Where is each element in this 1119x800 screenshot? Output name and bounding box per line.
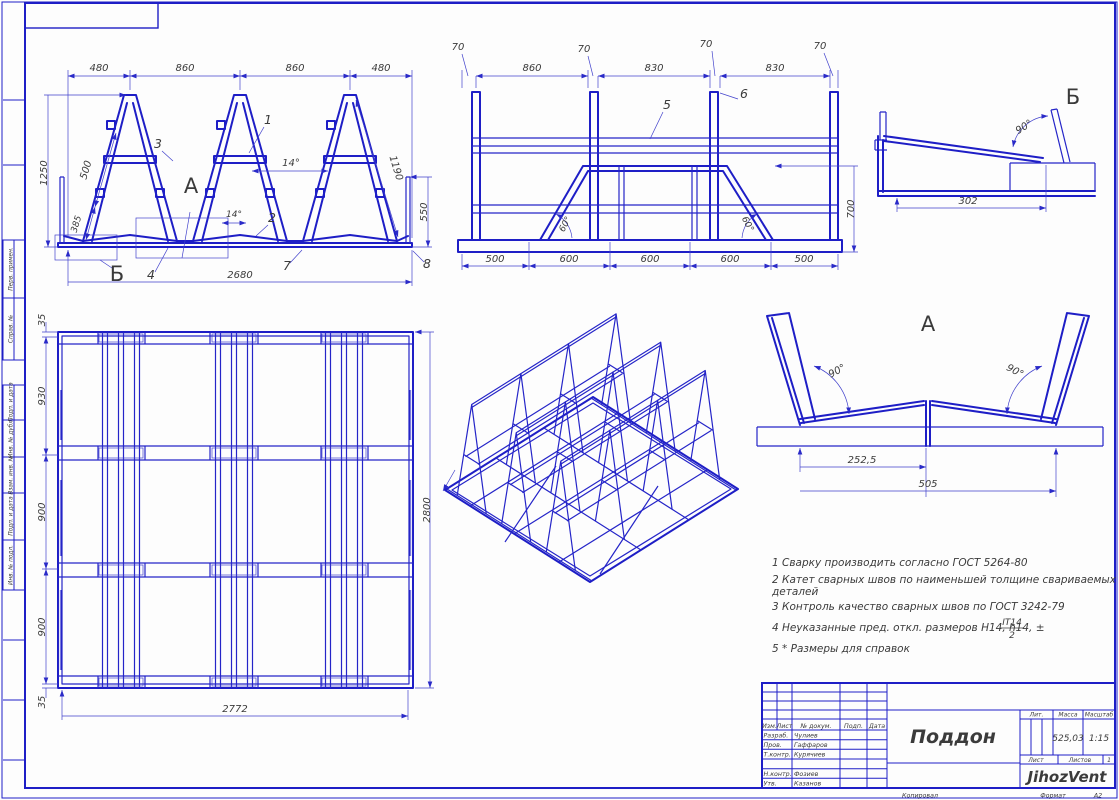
plan-side-dim-2: 900 bbox=[37, 502, 48, 521]
drawing-canvas: Перв. примен. Справ. № Подп. и дата Инв.… bbox=[0, 0, 1119, 800]
side-width-dim-3: 70 bbox=[814, 41, 827, 52]
tb-sheet-label: Лист bbox=[1027, 757, 1044, 764]
margin-label-podp-data-1: Подп. и дата bbox=[9, 382, 15, 422]
front-bottom-dim: 2680 bbox=[227, 270, 252, 281]
note-5: 5 * Размеры для справок bbox=[772, 643, 911, 655]
tb-mass-label: Масса bbox=[1058, 712, 1077, 719]
note-4-frac-top: IT14 bbox=[1002, 618, 1022, 628]
note-2a: 2 Катет сварных швов по наименьшей толщи… bbox=[772, 574, 1117, 586]
side-part-label-5: 5 bbox=[663, 97, 671, 112]
front-right-height-dim: 550 bbox=[419, 202, 430, 221]
tb-role-tkontr: Т.контр. bbox=[764, 752, 791, 759]
side-width-dim-2: 70 bbox=[700, 39, 713, 50]
front-right-diag-dim: 1190 bbox=[387, 154, 405, 182]
margin-label-inv-dubl: Инв. № дубл. bbox=[9, 418, 15, 458]
detail-a-angle-right: 90° bbox=[1004, 362, 1025, 380]
front-part-label-4: 4 bbox=[147, 267, 155, 282]
front-zone-b-letter: Б bbox=[110, 262, 124, 286]
margin-label-podp-data-2: Подп. и дата bbox=[9, 496, 15, 536]
front-diag-dim-upper: 500 bbox=[78, 159, 94, 180]
front-top-dim-0: 480 bbox=[89, 63, 108, 74]
side-view: 60° 60° 70 70 70 70 860 830 830 500 600 … bbox=[452, 39, 858, 270]
margin-label-vzam-inv: Взам. инв. № bbox=[9, 455, 15, 494]
tb-col-podp: Подп. bbox=[844, 723, 863, 730]
tb-name-tkontr: Курячиев bbox=[794, 752, 826, 759]
title-block: Изм. Лист № докум. Подп. Дата Разраб. Чу… bbox=[762, 683, 1115, 800]
front-top-dim-2: 860 bbox=[285, 63, 304, 74]
tb-mass-value: 525,03 bbox=[1052, 734, 1084, 744]
front-top-dim-3: 480 bbox=[371, 63, 390, 74]
side-width-dim-1: 70 bbox=[578, 44, 591, 55]
tb-name-utv: Казанов bbox=[794, 781, 822, 788]
tb-role-utv: Утв. bbox=[764, 781, 777, 788]
sheet-format-label: Формат bbox=[1040, 793, 1066, 800]
side-bottom-dim-3: 600 bbox=[720, 254, 739, 265]
front-part-label-8: 8 bbox=[423, 256, 431, 271]
side-height-dim: 700 bbox=[846, 199, 857, 218]
front-angle-1: 14° bbox=[282, 158, 300, 169]
tb-col-data: Дата bbox=[868, 723, 885, 730]
side-bottom-dim-1: 600 bbox=[559, 254, 578, 265]
front-diag-dim-lower: 385 bbox=[70, 214, 85, 234]
sheet-copied-label: Копировал bbox=[902, 793, 938, 800]
front-part-label-3: 3 bbox=[154, 136, 162, 151]
front-angle-2: 14° bbox=[226, 210, 242, 220]
front-height-dim: 1250 bbox=[39, 160, 50, 185]
front-top-dim-1: 860 bbox=[175, 63, 194, 74]
tb-sheets-label: Листов bbox=[1068, 757, 1092, 764]
tb-role-nkontr: Н.контр. bbox=[764, 771, 792, 778]
detail-b-dim: 302 bbox=[958, 196, 977, 207]
detail-b-letter: Б bbox=[1066, 85, 1080, 109]
side-span-dim-2: 830 bbox=[765, 63, 784, 74]
front-view: 480 860 860 480 2680 1250 500 385 550 11… bbox=[39, 63, 432, 286]
isometric-view bbox=[445, 314, 738, 582]
detail-a-letter: А bbox=[921, 312, 936, 336]
drawing-sheet: Перв. примен. Справ. № Подп. и дата Инв.… bbox=[0, 0, 1119, 800]
tb-role-razrab: Разраб. bbox=[764, 732, 789, 740]
detail-b-view: Б 90° 302 bbox=[875, 85, 1095, 212]
plan-side-dim-0: 35 bbox=[37, 314, 48, 327]
tb-scale-label: Масштаб bbox=[1085, 712, 1114, 719]
tb-col-list: Лист bbox=[776, 723, 793, 730]
tb-role-prov: Пров. bbox=[764, 742, 782, 749]
notes: 1 Сварку производить согласно ГОСТ 5264-… bbox=[771, 557, 1117, 655]
detail-a-dim-half: 252,5 bbox=[848, 455, 877, 466]
plan-right-dim: 2800 bbox=[422, 497, 433, 522]
tb-doc-title: Поддон bbox=[910, 726, 996, 748]
side-bottom-dim-4: 500 bbox=[794, 254, 813, 265]
note-4-frac-bottom: 2 bbox=[1009, 631, 1015, 641]
tb-scale-value: 1:15 bbox=[1089, 734, 1109, 744]
side-span-dim-0: 860 bbox=[522, 63, 541, 74]
front-zone-a-letter: А bbox=[184, 174, 199, 198]
side-bottom-dim-2: 600 bbox=[640, 254, 659, 265]
margin-label-inv-podl: Инв. № подл. bbox=[9, 545, 15, 585]
note-1: 1 Сварку производить согласно ГОСТ 5264-… bbox=[772, 557, 1028, 569]
front-part-label-1: 1 bbox=[264, 112, 272, 127]
front-part-label-2: 2 bbox=[268, 210, 276, 225]
detail-a-view: А 90° 90° 252,5 505 bbox=[757, 312, 1103, 497]
tb-company: JihozVent bbox=[1025, 768, 1108, 786]
plan-view: 35 930 900 900 35 2772 2800 bbox=[37, 314, 455, 720]
plan-side-dim-1: 930 bbox=[37, 386, 48, 405]
tb-sheets-value: 1 bbox=[1107, 757, 1111, 764]
note-3: 3 Контроль качество сварных швов по ГОСТ… bbox=[772, 601, 1065, 613]
note-2b: деталей bbox=[771, 586, 818, 598]
plan-side-dim-3: 900 bbox=[37, 617, 48, 636]
tb-lit-label: Лит. bbox=[1029, 712, 1044, 719]
side-span-dim-1: 830 bbox=[644, 63, 663, 74]
top-left-stamp-box bbox=[25, 3, 158, 28]
front-part-label-7: 7 bbox=[283, 258, 291, 273]
margin-column: Перв. примен. Справ. № Подп. и дата Инв.… bbox=[3, 100, 25, 760]
tb-col-ndoc: № докум. bbox=[799, 723, 831, 730]
side-part-label-6: 6 bbox=[740, 86, 748, 101]
tb-name-razrab: Чулиев bbox=[794, 733, 818, 740]
margin-label-sprav-no: Справ. № bbox=[9, 315, 15, 343]
margin-label-perv-primen: Перв. примен. bbox=[9, 247, 15, 291]
detail-a-dim-full: 505 bbox=[918, 479, 937, 490]
tb-name-nkontr: Фозиев bbox=[794, 771, 819, 778]
detail-a-angle-left: 90° bbox=[827, 362, 848, 380]
plan-side-dim-4: 35 bbox=[37, 696, 48, 709]
side-bottom-dim-0: 500 bbox=[485, 254, 504, 265]
plan-bottom-dim: 2772 bbox=[222, 704, 247, 715]
sheet-format-value: А2 bbox=[1093, 793, 1102, 800]
tb-col-izm: Изм. bbox=[762, 723, 777, 730]
tb-name-prov: Гаффаров bbox=[794, 742, 828, 749]
side-width-dim-0: 70 bbox=[452, 42, 465, 53]
